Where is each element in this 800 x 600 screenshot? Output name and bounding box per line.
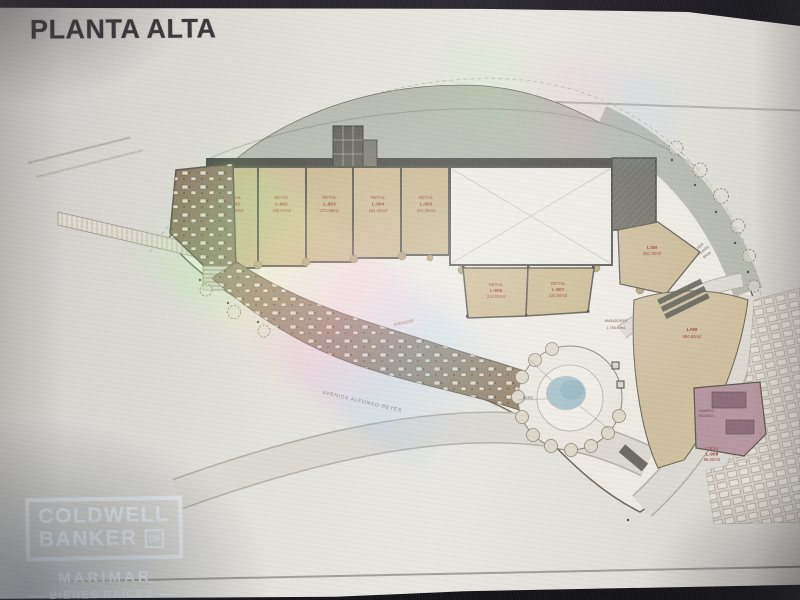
parking-bottom-right bbox=[706, 452, 800, 524]
svg-text:330.78m2: 330.78m2 bbox=[643, 251, 662, 256]
svg-text:218.00m2: 218.00m2 bbox=[487, 294, 506, 299]
svg-text:RETAIL: RETAIL bbox=[322, 195, 337, 200]
svg-text:450.60m2: 450.60m2 bbox=[683, 334, 702, 339]
lower-units: RETAIL L-906 218.00m2 RETAIL L-907 220.5… bbox=[462, 266, 595, 318]
technical-building: CUARTO TECNICO bbox=[694, 382, 766, 456]
brand-name-top: COLDWELL bbox=[38, 504, 169, 529]
svg-text:RETAIL: RETAIL bbox=[551, 281, 566, 286]
tagline-text: BIENES RAÍCES bbox=[50, 588, 154, 600]
corridor-wall bbox=[206, 158, 656, 167]
svg-text:L-902: L-902 bbox=[275, 202, 288, 208]
svg-text:RETAIL: RETAIL bbox=[371, 195, 386, 200]
svg-text:224.28m2: 224.28m2 bbox=[417, 208, 436, 213]
svg-text:188.97m2: 188.97m2 bbox=[272, 208, 291, 213]
brand-name-bottom: BANKER bbox=[39, 527, 138, 551]
service-block bbox=[612, 158, 656, 230]
void-open-to-below bbox=[450, 167, 612, 265]
agency-name: MARIMAR bbox=[26, 568, 183, 588]
tagline-rule-right bbox=[159, 594, 177, 595]
svg-text:CUARTO: CUARTO bbox=[698, 409, 713, 413]
svg-text:L-904: L-904 bbox=[372, 202, 385, 208]
retail-units-row: RETAIL L-901 104.09m2 RETAIL L-902 188.9… bbox=[210, 167, 449, 268]
svg-text:RETAIL: RETAIL bbox=[419, 195, 434, 200]
svg-text:1,748.40m2: 1,748.40m2 bbox=[607, 326, 626, 330]
screen-photo: RETAIL L-901 104.09m2 RETAIL L-902 188.9… bbox=[0, 0, 800, 600]
svg-text:L-903: L-903 bbox=[323, 202, 336, 208]
svg-text:241.63m2: 241.63m2 bbox=[369, 208, 388, 213]
avenue-label: AVENIDA ALFONSO REYES bbox=[322, 390, 403, 414]
agency-tagline: BIENES RAÍCES bbox=[27, 588, 184, 600]
patio-label: PATIO bbox=[523, 396, 533, 400]
brand-monogram-icon: CB bbox=[144, 528, 163, 547]
svg-text:LOCAL: LOCAL bbox=[705, 446, 719, 451]
tagline-rule-left bbox=[27, 596, 45, 597]
svg-text:98.00m2: 98.00m2 bbox=[704, 457, 721, 462]
svg-text:220.56m2: 220.56m2 bbox=[549, 293, 568, 298]
svg-text:ANDADORES: ANDADORES bbox=[605, 319, 628, 323]
brand-logo-box: COLDWELL BANKER CB bbox=[25, 496, 183, 562]
page-title: PLANTA ALTA bbox=[30, 13, 217, 45]
svg-text:RETAIL: RETAIL bbox=[274, 195, 289, 200]
unit-label-l-908: LOCAL L-908 98.00m2 bbox=[704, 446, 721, 462]
svg-text:271.99m2: 271.99m2 bbox=[320, 208, 339, 213]
unit-l-903 bbox=[306, 167, 353, 262]
svg-text:TECNICO: TECNICO bbox=[698, 414, 714, 418]
svg-text:L-905: L-905 bbox=[420, 202, 433, 208]
unit-l-902 bbox=[258, 167, 306, 266]
svg-text:LAW: LAW bbox=[687, 327, 698, 333]
watermark: COLDWELL BANKER CB MARIMAR BIENES RAÍCES bbox=[25, 496, 184, 600]
svg-text:RETAIL: RETAIL bbox=[489, 282, 504, 287]
